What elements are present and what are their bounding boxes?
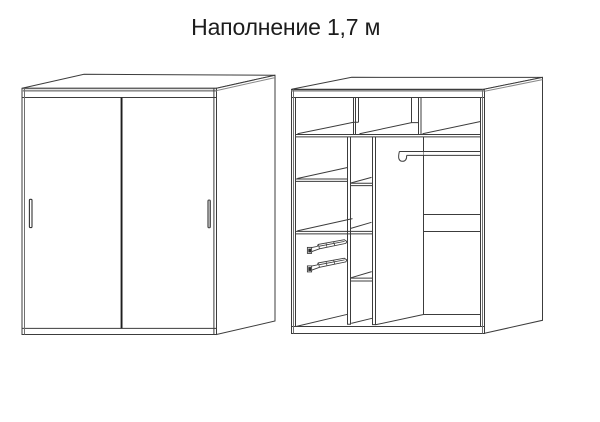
svg-text:Наполнение 1,7 м: Наполнение 1,7 м xyxy=(191,14,380,40)
